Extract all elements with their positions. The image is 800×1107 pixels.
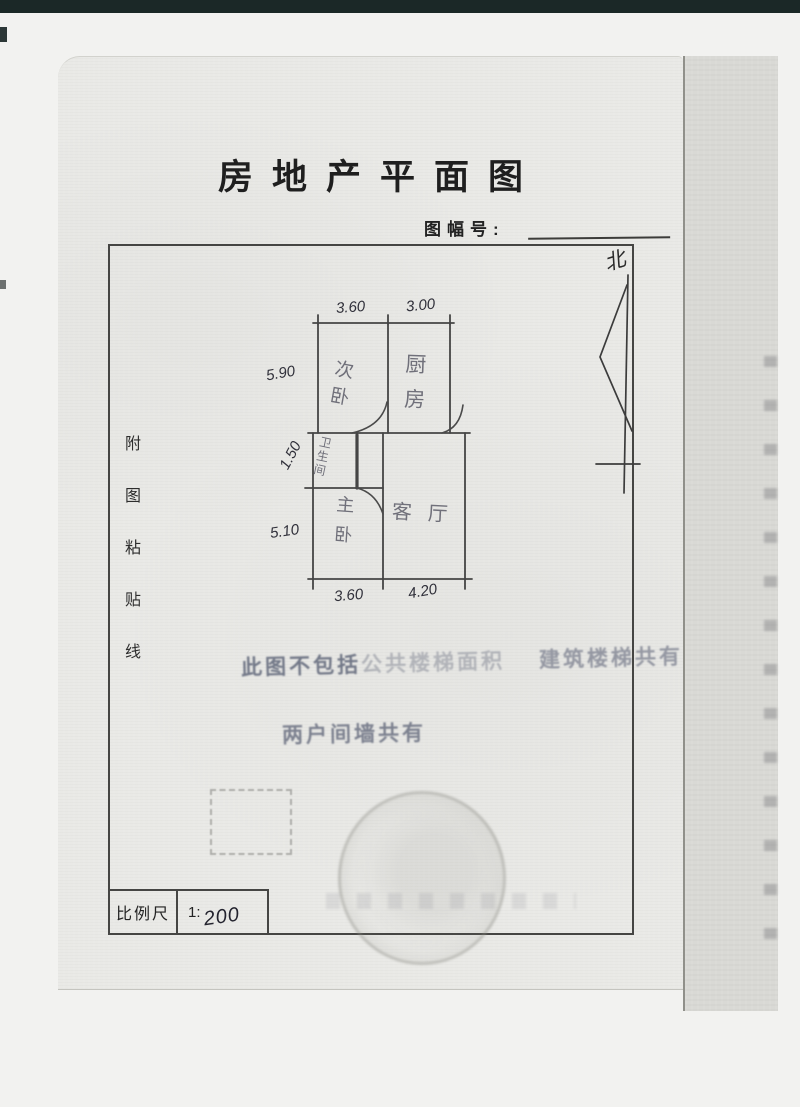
stamp-note-line1-right: 建筑楼梯共有 [539,645,684,672]
scan-top-bar [0,0,800,13]
scale-prefix: 1: [188,904,201,921]
paper-page: 房地产平面图 图幅号: 附图粘贴线 [58,56,683,990]
scan-edge-notch [0,27,7,42]
stamp-note-line1-strong: 此图不包括 [241,654,362,680]
scale-value-cell: 1: 200 [178,891,267,933]
room-label-kitchen: 厨房 [397,352,429,423]
bleedthrough-smudge [326,893,576,909]
scan-right-strip [683,56,778,1011]
scale-box: 比例尺 1: 200 [108,889,269,935]
strip-bleedthrough-marks [764,356,777,956]
scan-edge-speck [0,280,6,289]
rectangular-stamp [210,789,292,855]
scale-value-handwritten: 200 [202,903,241,931]
room-label-master-bedroom: 主卧 [328,494,358,556]
room-label-living-room: 客厅 [391,495,464,528]
dimension-top-right: 3.00 [405,296,436,316]
dimension-bottom-left: 3.60 [333,586,364,605]
round-seal-stamp [338,791,506,965]
stamp-note-line2: 两户间墙共有 [282,717,427,750]
north-arrow [596,275,640,493]
dimension-top-left: 3.60 [335,298,365,317]
scale-label: 比例尺 [110,891,178,933]
stamp-note-line1-faint: 公共楼梯面积 [361,650,506,677]
